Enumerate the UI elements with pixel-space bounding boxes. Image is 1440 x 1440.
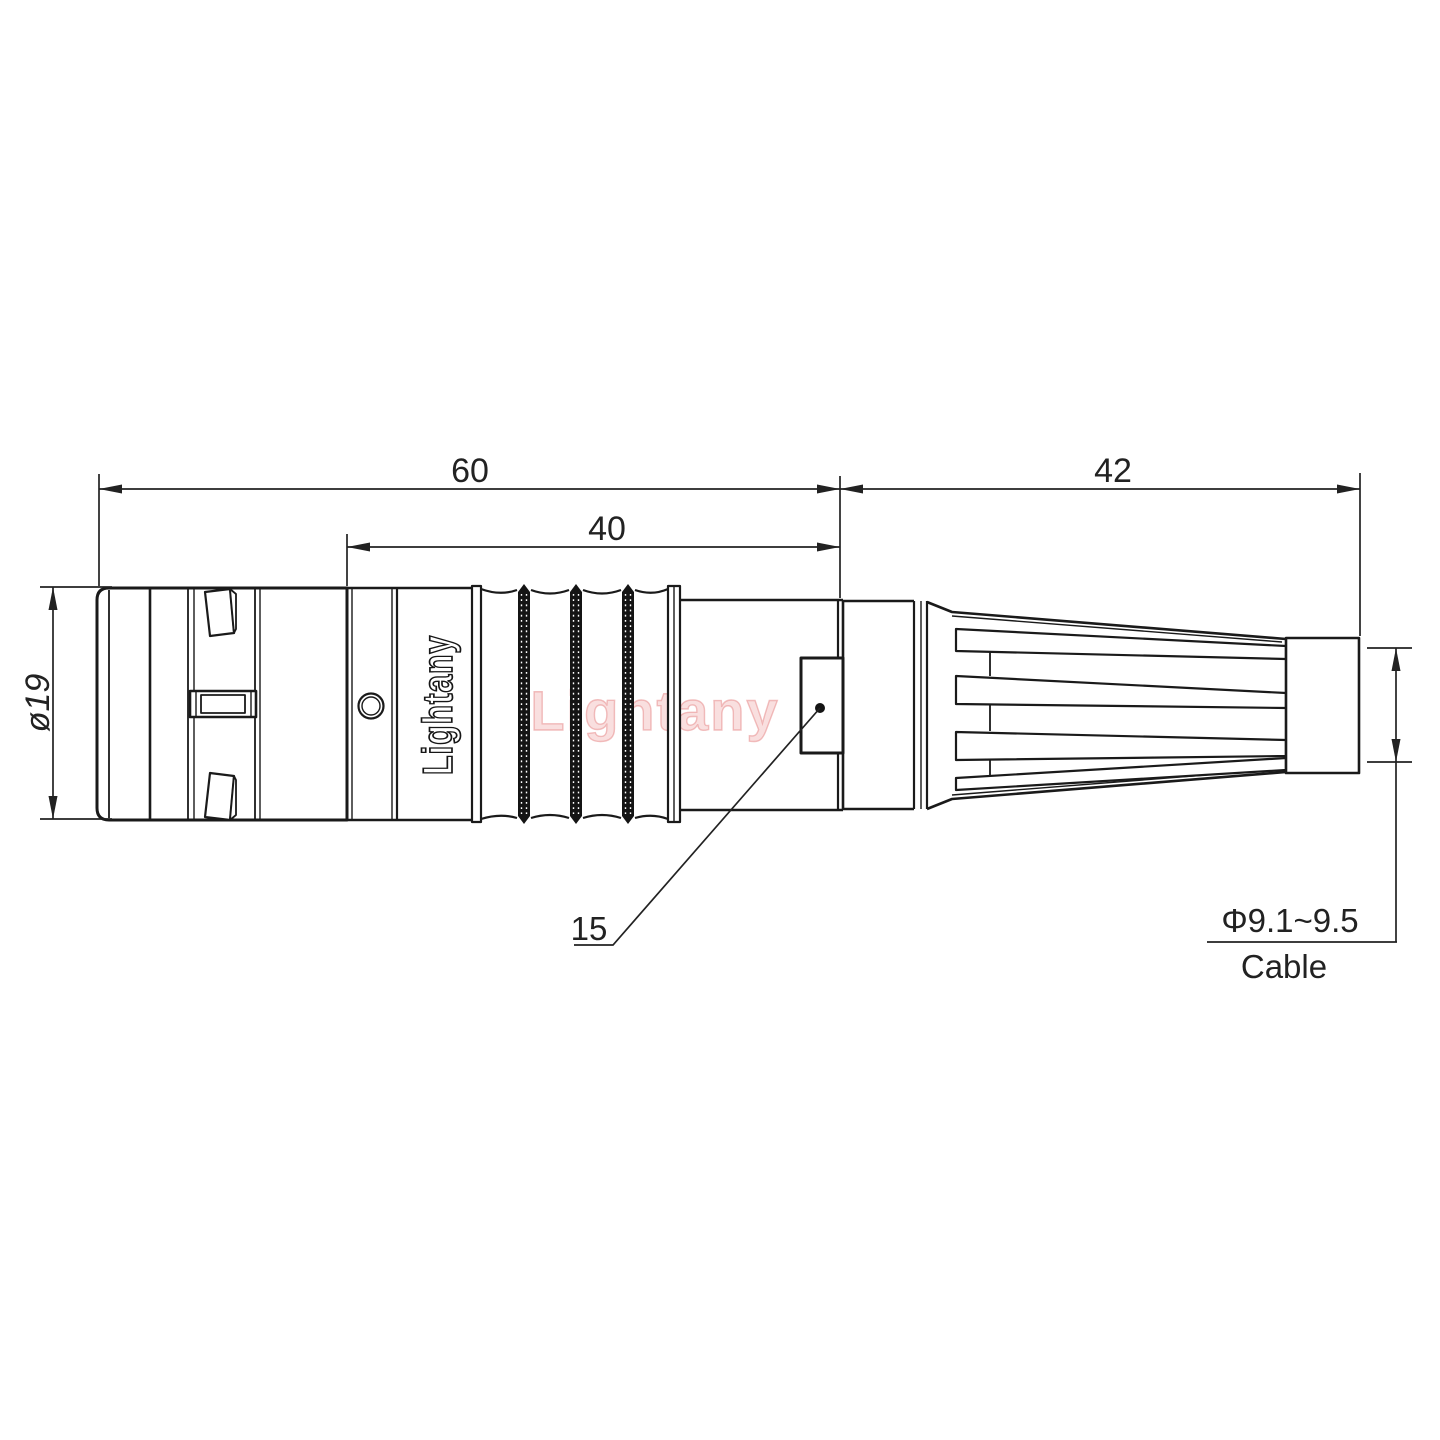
knurl-band (518, 584, 530, 824)
dim-60-label: 60 (451, 452, 489, 490)
bayonet-key-top (205, 589, 236, 636)
knurl-band (570, 584, 582, 824)
bayonet-key-bottom (205, 773, 236, 820)
logo-text: Lightany (414, 635, 461, 775)
dimension-front-section-length: 40 (347, 510, 840, 586)
drawing-page: Lightany (0, 0, 1440, 1440)
dim-diameter-19-label: ø19 (19, 674, 57, 733)
shell-slot (190, 691, 256, 717)
watermark-text: Lightany (530, 679, 779, 742)
cable-diameter-label: Φ9.1~9.5 (1221, 902, 1358, 939)
dim-40-label: 40 (588, 510, 626, 548)
knurl-band (622, 584, 634, 824)
dim-15-label: 15 (571, 910, 608, 947)
cable-sleeve (1286, 638, 1359, 773)
logo-section: Lightany (414, 635, 461, 775)
cable-label: Cable (1241, 948, 1327, 985)
dim-42-label: 42 (1094, 452, 1132, 490)
dimension-overall-length: 60 (99, 452, 840, 586)
technical-drawing-canvas: Lightany (0, 0, 1440, 1440)
